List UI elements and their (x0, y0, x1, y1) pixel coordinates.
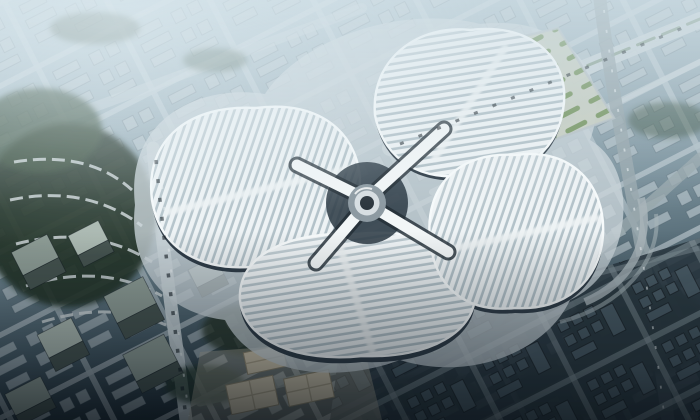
scene-canvas: Aerial rendering of a four-leaf-clover s… (0, 0, 700, 420)
aerial-rendering: Aerial rendering of a four-leaf-clover s… (0, 0, 700, 420)
vignette-overlay (0, 0, 700, 420)
